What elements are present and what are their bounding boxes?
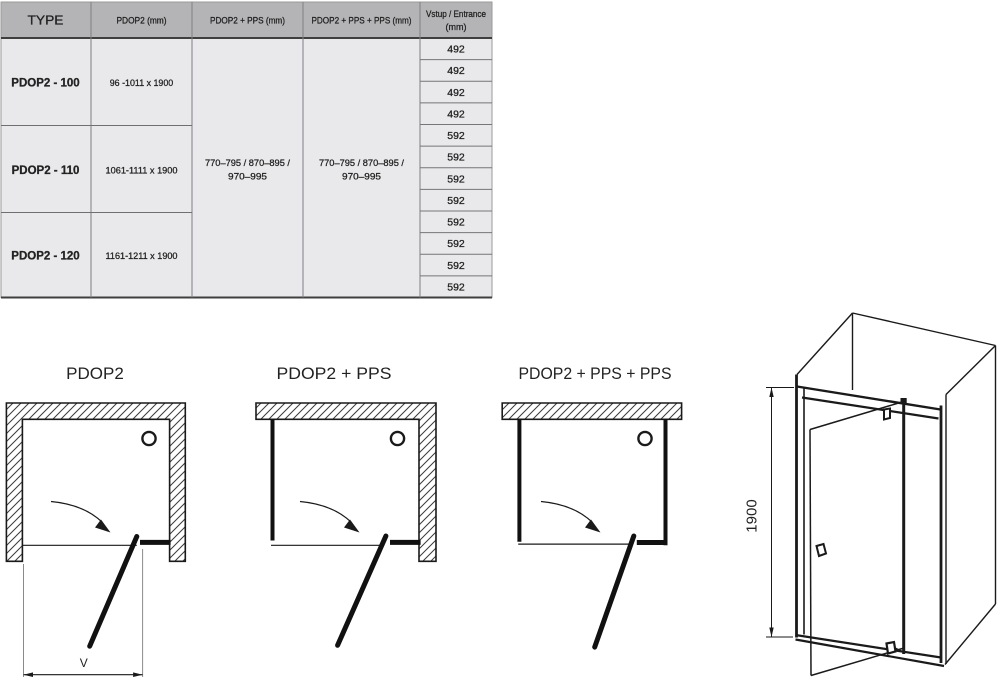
svg-text:PDOP2 (mm): PDOP2 (mm) bbox=[117, 16, 167, 26]
svg-text:592: 592 bbox=[447, 281, 465, 293]
svg-text:592: 592 bbox=[447, 238, 465, 250]
svg-text:592: 592 bbox=[447, 130, 465, 142]
svg-text:970–995: 970–995 bbox=[228, 172, 267, 183]
svg-text:492: 492 bbox=[447, 87, 465, 99]
svg-text:PDOP2 + PPS + PPS: PDOP2 + PPS + PPS bbox=[519, 364, 672, 383]
svg-text:PDOP2 - 120: PDOP2 - 120 bbox=[11, 251, 79, 263]
svg-text:492: 492 bbox=[447, 44, 465, 56]
svg-text:PDOP2 + PPS + PPS (mm): PDOP2 + PPS + PPS (mm) bbox=[312, 16, 412, 26]
svg-text:PDOP2 - 100: PDOP2 - 100 bbox=[11, 78, 79, 90]
svg-text:970–995: 970–995 bbox=[342, 172, 381, 183]
svg-text:492: 492 bbox=[447, 65, 465, 77]
svg-text:TYPE: TYPE bbox=[28, 14, 64, 28]
svg-text:770–795 / 870–895 /: 770–795 / 870–895 / bbox=[319, 158, 404, 169]
svg-text:(mm): (mm) bbox=[446, 22, 467, 32]
svg-text:592: 592 bbox=[447, 260, 465, 272]
svg-text:592: 592 bbox=[447, 217, 465, 229]
svg-text:1900: 1900 bbox=[744, 499, 761, 532]
svg-text:592: 592 bbox=[447, 173, 465, 185]
svg-text:592: 592 bbox=[447, 152, 465, 164]
svg-text:PDOP2 + PPS (mm): PDOP2 + PPS (mm) bbox=[210, 16, 285, 26]
svg-text:PDOP2 + PPS: PDOP2 + PPS bbox=[277, 364, 392, 383]
svg-text:Vstup / Entrance: Vstup / Entrance bbox=[426, 9, 486, 19]
svg-text:PDOP2: PDOP2 bbox=[66, 364, 124, 383]
svg-text:1061-1111 x 1900: 1061-1111 x 1900 bbox=[106, 166, 178, 177]
svg-text:1161-1211 x 1900: 1161-1211 x 1900 bbox=[106, 251, 178, 262]
svg-text:770–795 / 870–895 /: 770–795 / 870–895 / bbox=[205, 158, 290, 169]
svg-text:PDOP2 - 110: PDOP2 - 110 bbox=[12, 165, 80, 177]
svg-text:592: 592 bbox=[447, 195, 465, 207]
svg-text:96 -1011 x 1900: 96 -1011 x 1900 bbox=[110, 78, 174, 89]
svg-text:492: 492 bbox=[447, 108, 465, 120]
svg-text:V: V bbox=[80, 656, 88, 670]
